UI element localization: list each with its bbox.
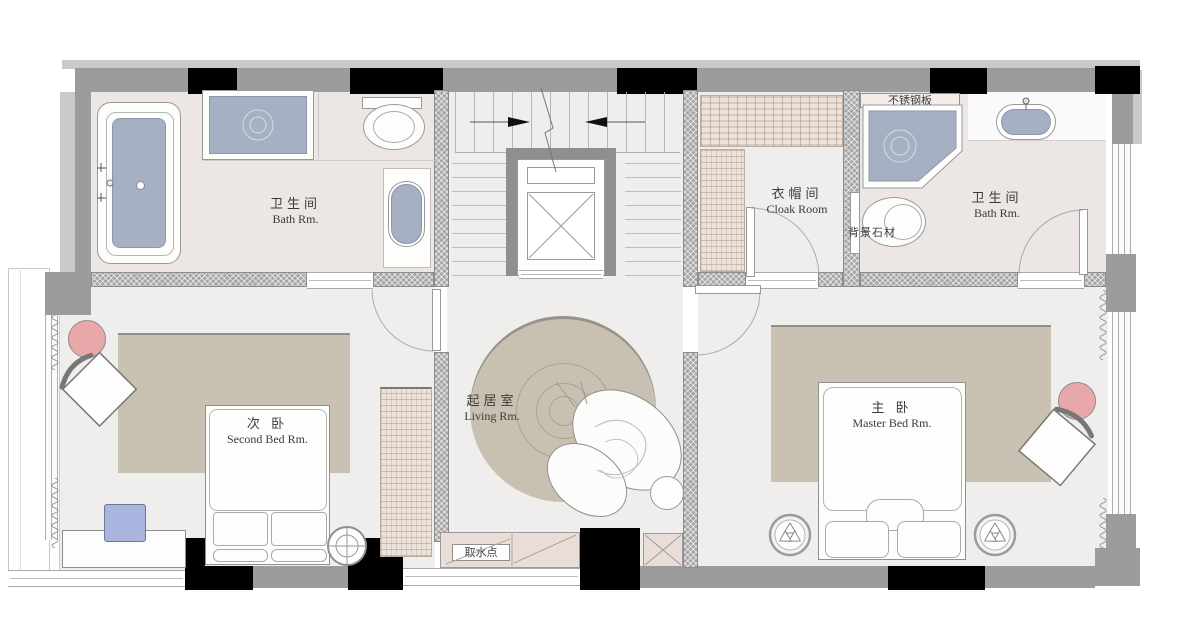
bottom-wall-1 (250, 566, 348, 588)
curtain-icon (1097, 290, 1109, 360)
second-bedroom-label-en: Second Bed Rm. (205, 432, 330, 446)
bath-left-door-sill (307, 272, 373, 289)
wall-bedroom2-living (434, 352, 449, 542)
pillow (213, 512, 268, 546)
balcony (8, 268, 50, 574)
x-cabinet (643, 533, 683, 567)
curtain-icon (1097, 498, 1109, 568)
bath-right-door-sill (1018, 272, 1084, 289)
wall-hall-right (683, 90, 698, 287)
balcony-inner-line (20, 270, 21, 570)
second-bedroom-label: 次 卧 Second Bed Rm. (205, 416, 330, 446)
elevator-counterweight (527, 167, 595, 184)
pillow (271, 549, 327, 562)
door-leaf (695, 285, 761, 294)
lounge-chair-icon (50, 344, 142, 436)
staircase-right-flight (625, 158, 681, 276)
left-wall (75, 92, 91, 272)
side-table-icon (650, 476, 684, 510)
bath-left-label: 卫生间 Bath Rm. (238, 196, 353, 226)
elevator-door-sill (519, 270, 603, 279)
bath-left-label-zh: 卫生间 (238, 196, 353, 212)
bathtub-drain (136, 181, 145, 190)
bedroom-wardrobe (380, 387, 432, 557)
right-window-lower (1112, 312, 1133, 514)
column (930, 68, 987, 94)
balcony-bottom-sill (8, 570, 185, 587)
stool-icon (325, 524, 369, 568)
wall-bath-left-bottom (91, 272, 307, 287)
bath-right-label: 卫生间 Bath Rm. (943, 190, 1051, 220)
column (580, 528, 640, 590)
desk-chair-icon (104, 504, 146, 542)
toilet-bowl-inner (373, 111, 415, 143)
staircase-left-flight (452, 158, 508, 276)
door-leaf (1079, 209, 1088, 275)
curtain-icon (49, 300, 61, 370)
right-wall-mid (1106, 254, 1136, 312)
wall-bath-left-bottom-2 (373, 272, 434, 287)
bedside-table-icon (768, 513, 812, 557)
living-room-label-en: Living Rm. (437, 409, 547, 423)
shower-icon (209, 96, 307, 154)
pillow (271, 512, 327, 546)
master-bedroom-label-zh: 主 卧 (818, 400, 966, 416)
elevator-icon (527, 192, 595, 260)
living-room-label: 起居室 Living Rm. (437, 393, 547, 423)
soaking-tub-icon (391, 184, 422, 244)
bath-right-label-en: Bath Rm. (943, 206, 1051, 220)
door-leaf (746, 207, 755, 277)
living-room-label-zh: 起居室 (437, 393, 547, 409)
column (185, 566, 253, 590)
curtain-icon (49, 478, 61, 548)
pillow (213, 549, 268, 562)
outer-wall-strip-left (60, 92, 75, 272)
wall-bath-right-bottom (860, 272, 1018, 287)
shower-icon (862, 104, 964, 190)
bottom-window-sill (403, 568, 580, 586)
lounge-chair-icon (1008, 396, 1104, 492)
pillow (897, 521, 961, 558)
master-bedroom-label: 主 卧 Master Bed Rm. (818, 400, 966, 430)
right-window-upper (1112, 144, 1133, 254)
second-bedroom-label-zh: 次 卧 (205, 416, 330, 432)
water-point-label: 取水点 (452, 544, 510, 561)
bath-right-label-zh: 卫生间 (943, 190, 1051, 206)
cloak-room-label: 衣帽间 Cloak Room (738, 186, 856, 216)
column (350, 68, 443, 94)
stone-wall-label: 背景石材 (848, 224, 896, 240)
right-wall-low (1106, 514, 1136, 548)
cloak-room-label-en: Cloak Room (738, 202, 856, 216)
column (888, 566, 985, 590)
bath-left-partition (318, 92, 319, 160)
staircase-upper-flight (455, 92, 680, 153)
column (1095, 66, 1140, 94)
door-leaf (432, 289, 441, 351)
cloak-room-label-zh: 衣帽间 (738, 186, 856, 202)
oval-bathtub-icon (1001, 109, 1051, 135)
floor-plan: 不锈钢板 背景石材 次 卧 Second Bed Rm. (0, 0, 1192, 641)
bath-left-label-en: Bath Rm. (238, 212, 353, 226)
right-wall-upper (1112, 92, 1133, 144)
pillow (825, 521, 889, 558)
wall-cloak-bottom-2 (818, 272, 843, 287)
bath-left-partition-h (203, 160, 437, 161)
bottom-wall-2 (640, 566, 1095, 588)
cloak-wardrobe-top (700, 95, 843, 147)
master-bedroom-label-en: Master Bed Rm. (818, 416, 966, 430)
wall-hall-left (434, 90, 449, 287)
bedside-table-icon (973, 513, 1017, 557)
